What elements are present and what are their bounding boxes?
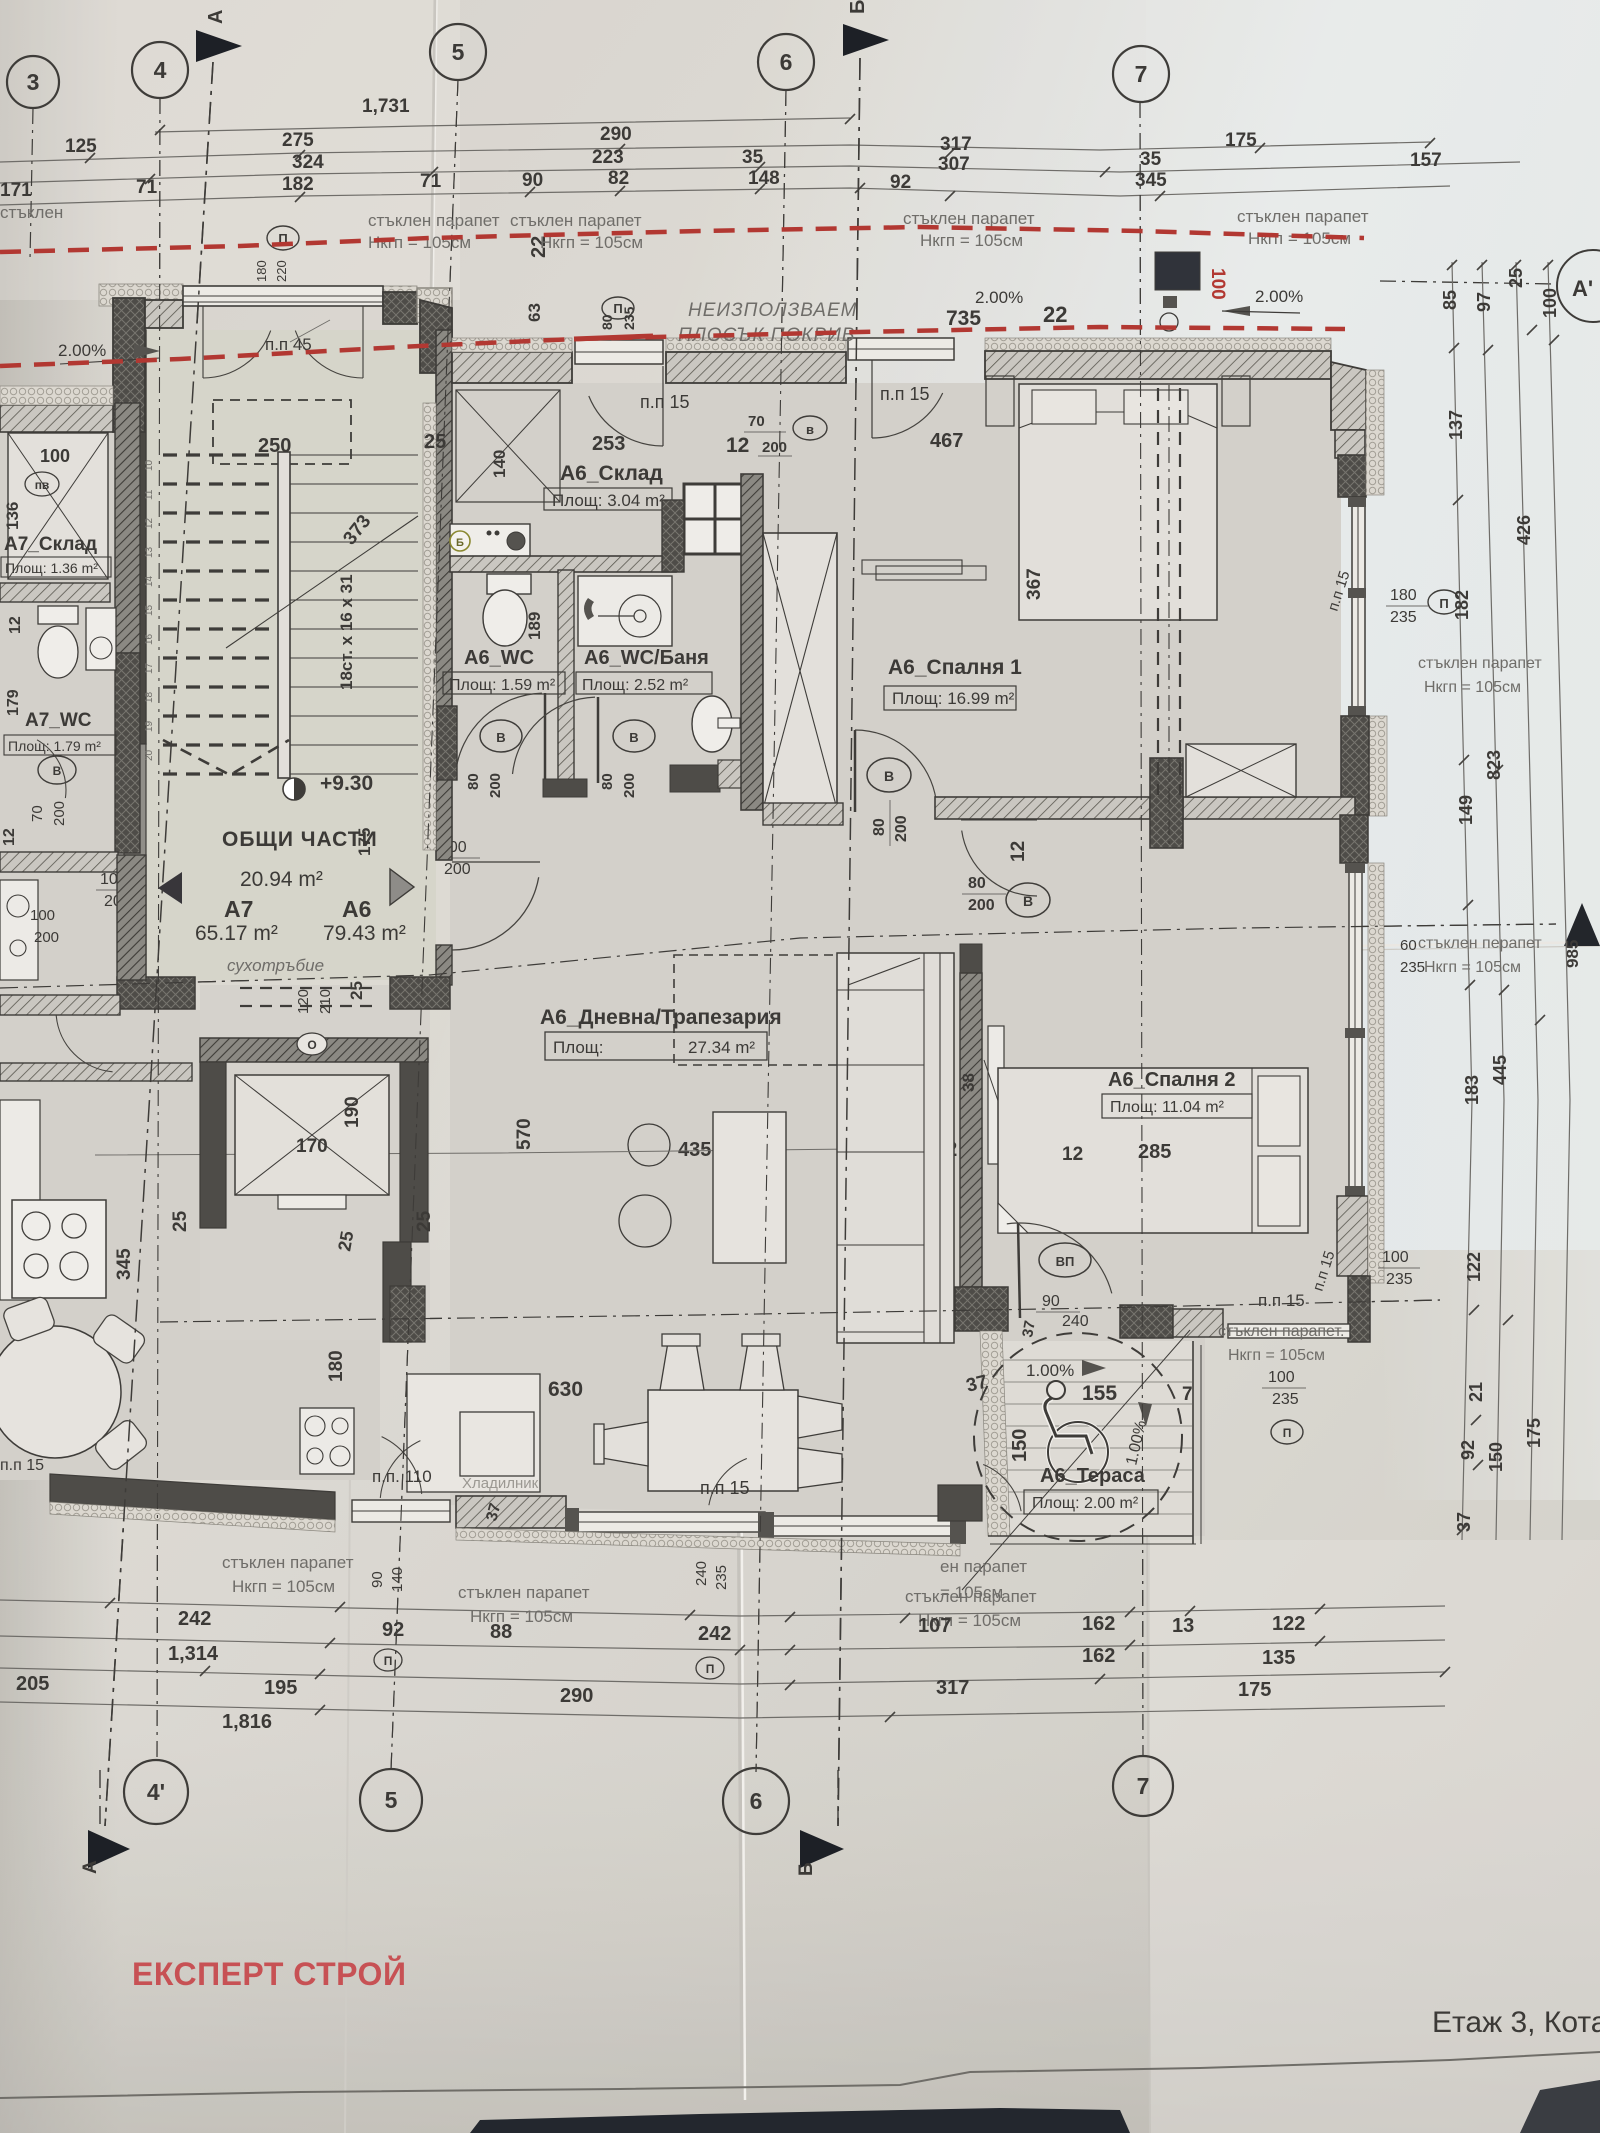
svg-text:92: 92 <box>382 1619 404 1641</box>
svg-text:155: 155 <box>1082 1382 1117 1405</box>
svg-text:235: 235 <box>1400 959 1425 976</box>
svg-text:Площ: 1.36 m²: Площ: 1.36 m² <box>5 560 98 576</box>
svg-text:п.п 15: п.п 15 <box>700 1478 750 1498</box>
svg-text:А': А' <box>1572 276 1593 301</box>
svg-text:120: 120 <box>295 989 312 1014</box>
svg-text:2.00%: 2.00% <box>1255 287 1303 306</box>
svg-text:140: 140 <box>490 450 509 478</box>
svg-text:1,731: 1,731 <box>362 96 410 117</box>
svg-text:122: 122 <box>1272 1613 1305 1635</box>
svg-text:А7_Склад: А7_Склад <box>4 534 97 555</box>
svg-text:Б: Б <box>796 1862 817 1876</box>
svg-text:Б: Б <box>456 537 464 549</box>
svg-text:90: 90 <box>522 170 543 191</box>
svg-text:Нкгп = 105см: Нкгп = 105см <box>1228 1347 1325 1364</box>
svg-text:235: 235 <box>1272 1391 1299 1408</box>
svg-text:170: 170 <box>296 1136 328 1157</box>
svg-text:240: 240 <box>693 1561 710 1586</box>
svg-text:А6_Склад: А6_Склад <box>560 462 663 485</box>
svg-text:7: 7 <box>1137 1773 1150 1799</box>
svg-text:220: 220 <box>274 260 289 282</box>
svg-text:307: 307 <box>938 154 970 175</box>
svg-text:180: 180 <box>326 1350 347 1382</box>
svg-text:107: 107 <box>918 1615 951 1637</box>
svg-text:190: 190 <box>342 1096 363 1128</box>
svg-text:25: 25 <box>170 1210 191 1232</box>
svg-text:п.п 15: п.п 15 <box>880 384 930 404</box>
svg-text:85: 85 <box>1440 290 1460 310</box>
svg-text:122: 122 <box>1464 1252 1484 1282</box>
svg-text:200: 200 <box>51 801 68 826</box>
svg-text:175: 175 <box>1524 1418 1544 1448</box>
svg-text:2.00%: 2.00% <box>975 288 1023 307</box>
svg-text:35: 35 <box>742 147 764 168</box>
svg-text:25: 25 <box>414 1210 435 1232</box>
svg-text:стъклен парапет: стъклен парапет <box>1237 207 1369 226</box>
svg-text:3: 3 <box>27 69 40 95</box>
svg-text:21: 21 <box>1466 1382 1486 1402</box>
svg-text:В: В <box>496 730 505 745</box>
svg-text:В: В <box>1023 893 1033 909</box>
svg-text:п.п 15: п.п 15 <box>0 1457 44 1474</box>
svg-text:А6_WC: А6_WC <box>464 647 534 669</box>
svg-text:70: 70 <box>29 805 46 822</box>
svg-text:125: 125 <box>65 136 97 157</box>
svg-text:200: 200 <box>621 773 638 798</box>
svg-text:Площ: 2.52 m²: Площ: 2.52 m² <box>582 677 689 694</box>
svg-text:11: 11 <box>144 489 155 500</box>
svg-text:стъклен парапет: стъклен парапет <box>1418 655 1542 672</box>
svg-text:435: 435 <box>678 1139 711 1161</box>
svg-text:4: 4 <box>154 57 167 83</box>
svg-text:2.00%: 2.00% <box>58 341 106 360</box>
svg-text:100: 100 <box>1207 268 1228 300</box>
svg-text:367: 367 <box>1024 568 1045 600</box>
svg-text:467: 467 <box>930 430 963 452</box>
svg-text:А6_Тераса: А6_Тераса <box>1040 1465 1146 1487</box>
svg-text:4': 4' <box>147 1779 165 1805</box>
svg-text:Нкгп = 105см: Нкгп = 105см <box>232 1577 335 1596</box>
svg-text:НЕИЗПОЛЗВАЕМ: НЕИЗПОЛЗВАЕМ <box>688 300 857 321</box>
svg-text:25: 25 <box>424 431 446 453</box>
svg-text:стъклен парапет: стъклен парапет <box>458 1583 590 1602</box>
svg-text:+9.30: +9.30 <box>320 772 373 795</box>
svg-text:А6_Дневна/Трапезария: А6_Дневна/Трапезария <box>540 1006 782 1029</box>
svg-text:200: 200 <box>762 439 787 456</box>
svg-text:19: 19 <box>144 720 155 732</box>
svg-text:А7: А7 <box>224 896 253 922</box>
svg-text:80: 80 <box>599 773 616 790</box>
svg-text:275: 275 <box>282 130 314 151</box>
svg-text:317: 317 <box>940 134 972 155</box>
svg-text:823: 823 <box>1484 750 1504 780</box>
svg-text:12: 12 <box>7 616 24 634</box>
svg-text:205: 205 <box>16 1673 49 1695</box>
svg-text:ен парапет: ен парапет <box>940 1557 1027 1576</box>
svg-text:Площ: 16.99 m²: Площ: 16.99 m² <box>892 689 1015 708</box>
svg-text:235: 235 <box>1386 1271 1413 1288</box>
svg-text:О: О <box>307 1038 316 1052</box>
svg-text:А: А <box>80 1860 101 1874</box>
svg-text:189: 189 <box>525 612 544 640</box>
svg-text:Площ: 2.00 m²: Площ: 2.00 m² <box>1032 1495 1139 1512</box>
svg-text:12: 12 <box>1062 1144 1083 1165</box>
svg-text:П: П <box>1283 1426 1292 1440</box>
svg-text:150: 150 <box>1486 1442 1506 1472</box>
svg-text:А6: А6 <box>342 896 371 922</box>
svg-text:13: 13 <box>144 546 155 558</box>
svg-text:Площ: 1.59 m²: Площ: 1.59 m² <box>449 677 556 694</box>
svg-text:345: 345 <box>114 1248 135 1280</box>
svg-text:7: 7 <box>1135 61 1148 87</box>
svg-text:162: 162 <box>1082 1645 1115 1667</box>
svg-text:Площ: 1.79 m²: Площ: 1.79 m² <box>8 738 101 754</box>
svg-text:= 105см: = 105см <box>940 1583 1003 1602</box>
svg-text:200: 200 <box>893 815 910 842</box>
svg-text:80: 80 <box>871 818 888 836</box>
svg-text:735: 735 <box>946 307 981 330</box>
svg-text:стъклен парапет: стъклен парапет <box>368 211 500 230</box>
svg-text:пв: пв <box>35 478 50 492</box>
svg-text:10: 10 <box>144 459 155 471</box>
svg-text:92: 92 <box>890 172 911 193</box>
svg-text:175: 175 <box>1225 130 1257 151</box>
svg-text:12: 12 <box>1008 841 1029 862</box>
svg-text:18: 18 <box>144 691 155 703</box>
svg-text:65.17 m²: 65.17 m² <box>195 922 278 945</box>
svg-text:60: 60 <box>1400 937 1417 954</box>
svg-text:35: 35 <box>1140 149 1162 170</box>
svg-text:324: 324 <box>292 152 324 173</box>
svg-text:182: 182 <box>1452 590 1472 620</box>
svg-text:149: 149 <box>1456 795 1476 825</box>
svg-text:1.00%: 1.00% <box>1026 1361 1074 1380</box>
svg-text:630: 630 <box>548 1378 583 1401</box>
svg-text:20: 20 <box>144 749 155 761</box>
svg-text:25: 25 <box>1506 268 1526 288</box>
svg-text:82: 82 <box>608 168 629 189</box>
svg-text:П: П <box>1439 596 1448 611</box>
svg-text:12: 12 <box>1 828 18 846</box>
svg-text:179: 179 <box>5 689 22 716</box>
svg-text:п.п 15: п.п 15 <box>1258 1291 1305 1310</box>
svg-text:Площ:: Площ: <box>553 1038 604 1057</box>
svg-text:253: 253 <box>592 433 625 455</box>
svg-text:445: 445 <box>1490 1055 1510 1085</box>
svg-text:97: 97 <box>1474 292 1494 312</box>
svg-text:80: 80 <box>968 875 986 892</box>
svg-text:12: 12 <box>144 517 155 529</box>
svg-text:162: 162 <box>1082 1613 1115 1635</box>
svg-text:в: в <box>806 422 814 437</box>
svg-text:15: 15 <box>144 604 155 616</box>
svg-text:200: 200 <box>487 773 504 798</box>
svg-text:П: П <box>613 301 622 316</box>
svg-text:570: 570 <box>514 1118 535 1150</box>
svg-text:37: 37 <box>1454 1512 1474 1532</box>
svg-text:сухотръбие: сухотръбие <box>227 956 324 975</box>
svg-text:182: 182 <box>282 174 314 195</box>
svg-text:223: 223 <box>592 147 624 168</box>
svg-text:7: 7 <box>1182 1384 1193 1405</box>
svg-text:63: 63 <box>525 303 544 322</box>
svg-text:235: 235 <box>1390 609 1417 626</box>
svg-text:27.34 m²: 27.34 m² <box>688 1038 755 1057</box>
svg-text:6: 6 <box>780 49 793 75</box>
svg-text:200: 200 <box>34 929 59 946</box>
svg-text:14: 14 <box>144 575 155 587</box>
svg-text:17: 17 <box>144 662 155 674</box>
svg-text:240: 240 <box>1062 1313 1089 1330</box>
svg-text:Нкгп = 105см: Нкгп = 105см <box>1424 959 1521 976</box>
svg-text:25: 25 <box>347 981 366 1000</box>
svg-text:317: 317 <box>936 1677 969 1699</box>
svg-text:22: 22 <box>1043 302 1067 327</box>
svg-text:В: В <box>884 768 894 784</box>
svg-text:135: 135 <box>1262 1647 1295 1669</box>
svg-text:242: 242 <box>178 1608 211 1630</box>
svg-text:100: 100 <box>40 446 70 466</box>
svg-text:А6_Спалня 1: А6_Спалня 1 <box>888 656 1022 679</box>
svg-text:90: 90 <box>1042 1293 1060 1310</box>
svg-text:100: 100 <box>1268 1369 1295 1386</box>
svg-text:137: 137 <box>1446 410 1466 440</box>
svg-text:5: 5 <box>452 39 465 65</box>
svg-text:ЕКСПЕРТ СТРОЙ: ЕКСПЕРТ СТРОЙ <box>132 1956 406 1992</box>
svg-text:157: 157 <box>1410 150 1442 171</box>
svg-text:п.п 15: п.п 15 <box>640 392 690 412</box>
svg-text:92: 92 <box>1458 1440 1478 1460</box>
svg-text:стъклен перапет: стъклен перапет <box>1418 935 1542 952</box>
svg-text:А7_WC: А7_WC <box>25 710 92 731</box>
svg-text:В: В <box>629 730 638 745</box>
svg-text:Б: Б <box>847 0 869 14</box>
svg-text:П: П <box>706 1662 715 1676</box>
svg-text:136: 136 <box>3 502 22 530</box>
svg-text:стъклен парапет: стъклен парапет <box>510 211 642 230</box>
svg-text:80: 80 <box>465 773 482 790</box>
svg-text:290: 290 <box>560 1685 593 1707</box>
svg-text:100: 100 <box>1540 288 1560 318</box>
svg-text:100: 100 <box>30 907 55 924</box>
svg-text:Нкгп = 105см: Нкгп = 105см <box>1424 679 1521 696</box>
svg-text:Етаж 3, Кота: Етаж 3, Кота <box>1432 2006 1600 2039</box>
svg-text:200: 200 <box>444 861 471 878</box>
svg-text:16: 16 <box>144 633 155 645</box>
svg-text:180: 180 <box>1390 587 1417 604</box>
svg-text:37: 37 <box>1019 1319 1039 1338</box>
svg-text:195: 195 <box>264 1677 297 1699</box>
svg-text:1,816: 1,816 <box>222 1711 272 1733</box>
svg-text:П: П <box>384 1654 393 1668</box>
svg-text:Нкгп = 105см: Нкгп = 105см <box>470 1607 573 1626</box>
svg-text:210: 210 <box>317 989 334 1014</box>
svg-text:290: 290 <box>600 124 632 145</box>
svg-text:20.94 m²: 20.94 m² <box>240 868 323 891</box>
svg-text:180: 180 <box>254 260 269 282</box>
svg-text:242: 242 <box>698 1623 731 1645</box>
svg-text:175: 175 <box>1238 1679 1271 1701</box>
svg-text:А6_WC/Баня: А6_WC/Баня <box>584 647 709 669</box>
svg-text:175: 175 <box>355 828 374 856</box>
svg-text:38: 38 <box>959 1073 978 1092</box>
svg-text:25: 25 <box>334 1229 357 1252</box>
svg-text:426: 426 <box>1514 515 1534 545</box>
svg-text:стъклен: стъклен <box>0 203 63 222</box>
svg-text:183: 183 <box>1462 1075 1482 1105</box>
svg-text:стъклен парапет.: стъклен парапет. <box>1218 1323 1344 1340</box>
svg-text:Нкгп = 105см: Нкгп = 105см <box>920 231 1023 250</box>
svg-text:79.43 m²: 79.43 m² <box>323 922 406 945</box>
svg-text:Площ: 11.04 m²: Площ: 11.04 m² <box>1110 1099 1225 1116</box>
svg-text:171: 171 <box>0 180 32 201</box>
svg-text:71: 71 <box>420 171 442 192</box>
svg-text:140: 140 <box>389 1567 406 1592</box>
svg-text:стъклен парапет: стъклен парапет <box>222 1553 354 1572</box>
svg-text:Хладилник: Хладилник <box>462 1475 539 1492</box>
svg-text:100: 100 <box>1382 1249 1409 1266</box>
svg-text:285: 285 <box>1138 1141 1171 1163</box>
svg-text:1,314: 1,314 <box>168 1643 219 1665</box>
svg-text:18ст. x 16 x 31: 18ст. x 16 x 31 <box>337 574 356 690</box>
svg-text:200: 200 <box>968 897 995 914</box>
svg-text:148: 148 <box>748 168 780 189</box>
svg-text:150: 150 <box>1009 1429 1031 1462</box>
svg-text:А6_Спалня 2: А6_Спалня 2 <box>1108 1069 1235 1091</box>
svg-text:70: 70 <box>748 413 765 430</box>
svg-text:ВП: ВП <box>1056 1254 1075 1269</box>
svg-text:235: 235 <box>713 1565 730 1590</box>
svg-text:13: 13 <box>1172 1615 1194 1637</box>
svg-text:6: 6 <box>750 1788 763 1814</box>
svg-text:90: 90 <box>369 1571 386 1588</box>
svg-text:5: 5 <box>385 1787 398 1813</box>
svg-text:Площ: 3.04 m²: Площ: 3.04 m² <box>552 491 665 510</box>
svg-text:А: А <box>205 10 227 24</box>
svg-text:250: 250 <box>258 435 291 457</box>
svg-text:71: 71 <box>136 177 158 198</box>
svg-text:12: 12 <box>726 434 749 457</box>
svg-text:88: 88 <box>490 1621 512 1643</box>
